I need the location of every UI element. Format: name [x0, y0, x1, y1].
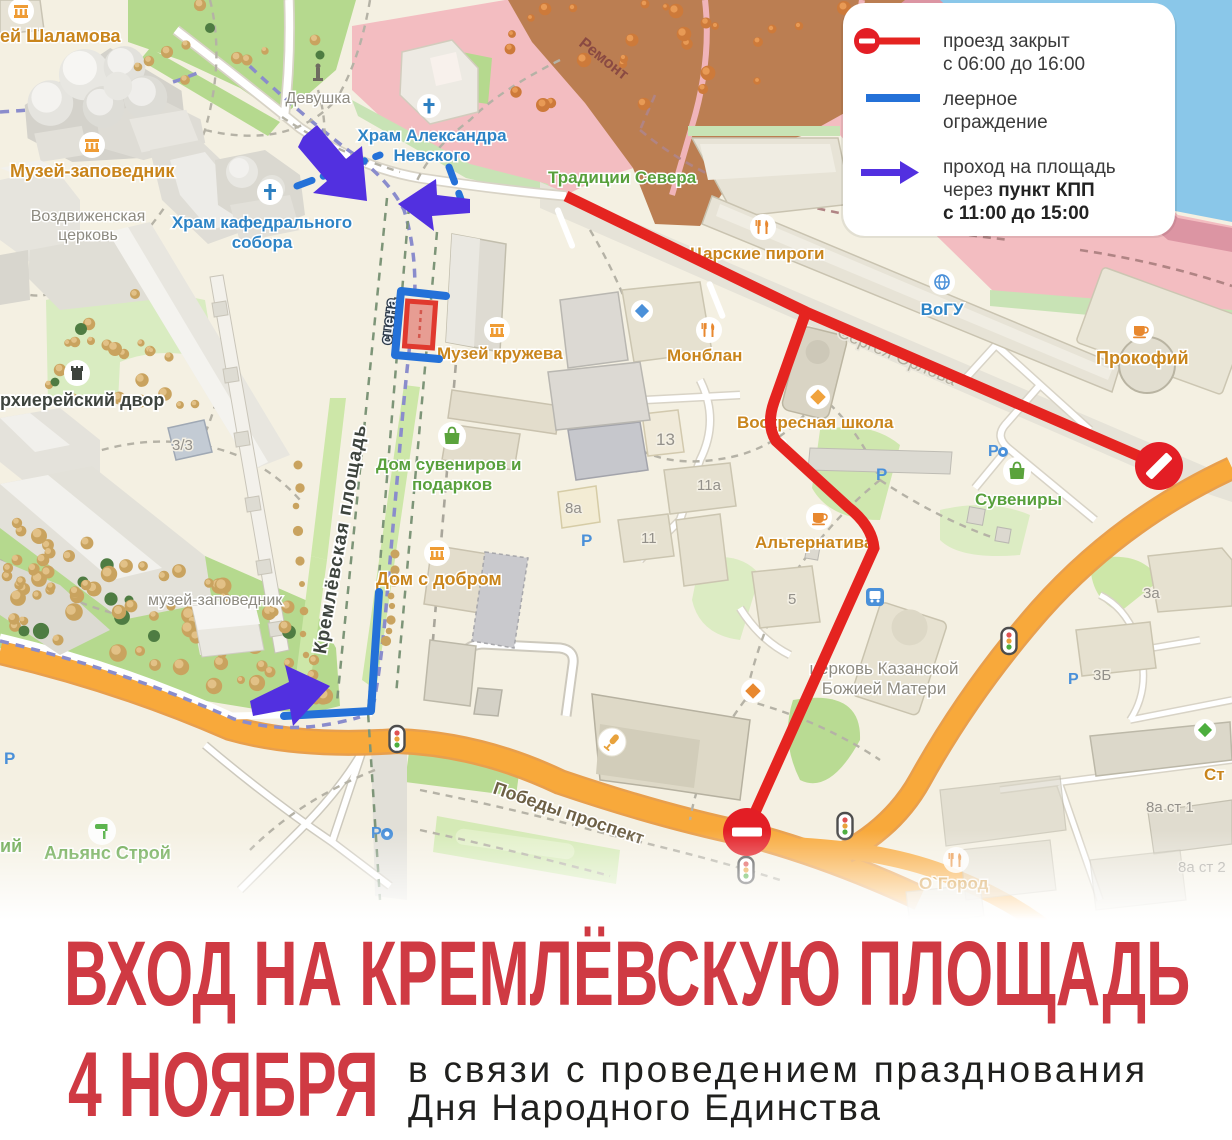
svg-text:4 НОЯБРЯ: 4 НОЯБРЯ	[68, 1032, 379, 1136]
svg-text:Воздвиженская: Воздвиженская	[31, 208, 146, 225]
svg-text:Девушка: Девушка	[286, 90, 351, 107]
svg-text:Монблан: Монблан	[667, 346, 742, 365]
svg-text:Храм кафедрального: Храм кафедрального	[172, 213, 352, 232]
svg-text:Традиции Севера: Традиции Севера	[548, 168, 697, 187]
svg-text:Храм Александра: Храм Александра	[357, 126, 507, 145]
svg-text:3Б: 3Б	[1093, 667, 1111, 684]
svg-text:с 06:00 до 16:00: с 06:00 до 16:00	[943, 54, 1085, 75]
svg-text:11: 11	[641, 530, 657, 547]
svg-text:ограждение: ограждение	[943, 112, 1048, 133]
svg-text:Дом сувениров и: Дом сувениров и	[376, 455, 521, 474]
svg-text:Божией Матери: Божией Матери	[822, 679, 946, 698]
svg-text:Дня Народного Единства: Дня Народного Единства	[408, 1087, 880, 1128]
svg-text:с 11:00 до 15:00: с 11:00 до 15:00	[943, 203, 1089, 224]
svg-text:8а: 8а	[565, 500, 582, 517]
svg-text:музей-заповедник: музей-заповедник	[148, 592, 283, 609]
svg-text:Р: Р	[876, 465, 887, 484]
svg-text:3а: 3а	[1143, 585, 1160, 602]
svg-text:Р: Р	[1068, 671, 1079, 688]
svg-text:проход на площадь: проход на площадь	[943, 157, 1116, 178]
svg-text:Р: Р	[4, 749, 15, 768]
svg-text:леерное: леерное	[943, 89, 1017, 110]
svg-text:церковь: церковь	[58, 227, 118, 244]
svg-text:Воскресная школа: Воскресная школа	[737, 413, 894, 432]
svg-text:Р: Р	[581, 531, 592, 550]
svg-text:в связи с проведением празднов: в связи с проведением празднования	[408, 1049, 1145, 1090]
svg-text:Дом с добром: Дом с добром	[376, 569, 502, 589]
svg-text:рхиерейский двор: рхиерейский двор	[0, 390, 164, 410]
svg-text:ВоГУ: ВоГУ	[921, 300, 964, 319]
svg-text:Р: Р	[988, 443, 999, 460]
svg-text:ВХОД НА КРЕМЛЁВСКУЮ ПЛОЩАДЬ: ВХОД НА КРЕМЛЁВСКУЮ ПЛОЩАДЬ	[64, 922, 1190, 1025]
svg-text:5: 5	[788, 591, 796, 608]
svg-text:проезд закрыт: проезд закрыт	[943, 31, 1070, 52]
svg-text:11а: 11а	[697, 477, 722, 494]
svg-text:13: 13	[656, 430, 675, 449]
svg-text:церковь Казанской: церковь Казанской	[809, 659, 958, 678]
svg-text:через пункт КПП: через пункт КПП	[943, 180, 1095, 201]
svg-text:ей Шаламова: ей Шаламова	[0, 26, 122, 46]
svg-text:Невского: Невского	[393, 146, 470, 165]
svg-text:подарков: подарков	[412, 475, 492, 494]
svg-text:Сувениры: Сувениры	[975, 490, 1062, 509]
svg-text:Музей кружева: Музей кружева	[437, 344, 563, 363]
svg-text:Альтернатива: Альтернатива	[755, 533, 874, 552]
svg-text:Ст: Ст	[1204, 765, 1225, 784]
svg-text:Прокофий: Прокофий	[1096, 348, 1189, 368]
svg-text:Музей-заповедник: Музей-заповедник	[10, 161, 175, 181]
svg-text:8а ст 1: 8а ст 1	[1146, 799, 1194, 816]
svg-text:3/3: 3/3	[172, 437, 193, 454]
svg-text:собора: собора	[232, 233, 293, 252]
